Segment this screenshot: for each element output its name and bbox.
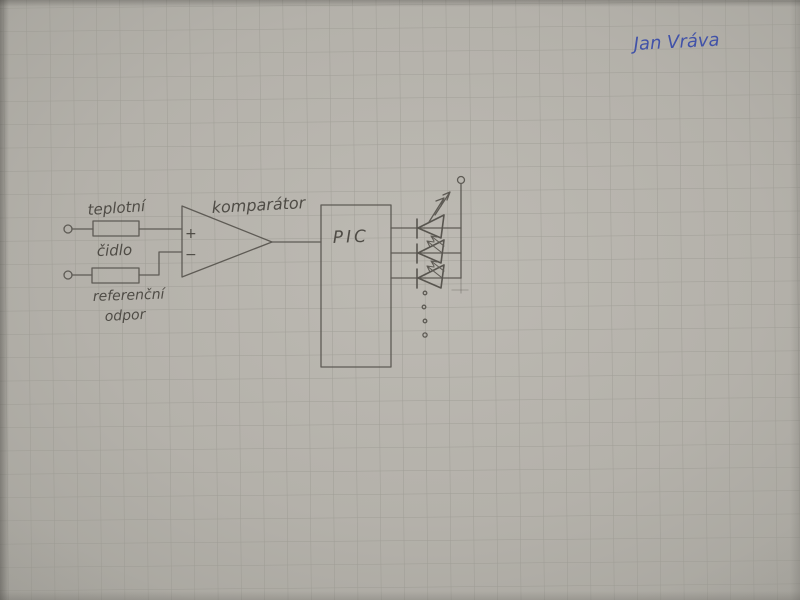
comparator-plus-input: +	[185, 226, 197, 242]
photo-of-schematic: teplotní čidlo referenční odpor komparát…	[0, 0, 800, 600]
label-reference-bottom: odpor	[104, 307, 147, 325]
comparator-minus-input: −	[185, 247, 197, 263]
schematic-svg: teplotní čidlo referenční odpor komparát…	[0, 0, 800, 600]
label-mcu: PIC	[332, 227, 369, 248]
label-reference-top: referenční	[93, 286, 167, 305]
label-sensor-bottom: čidlo	[97, 241, 133, 260]
